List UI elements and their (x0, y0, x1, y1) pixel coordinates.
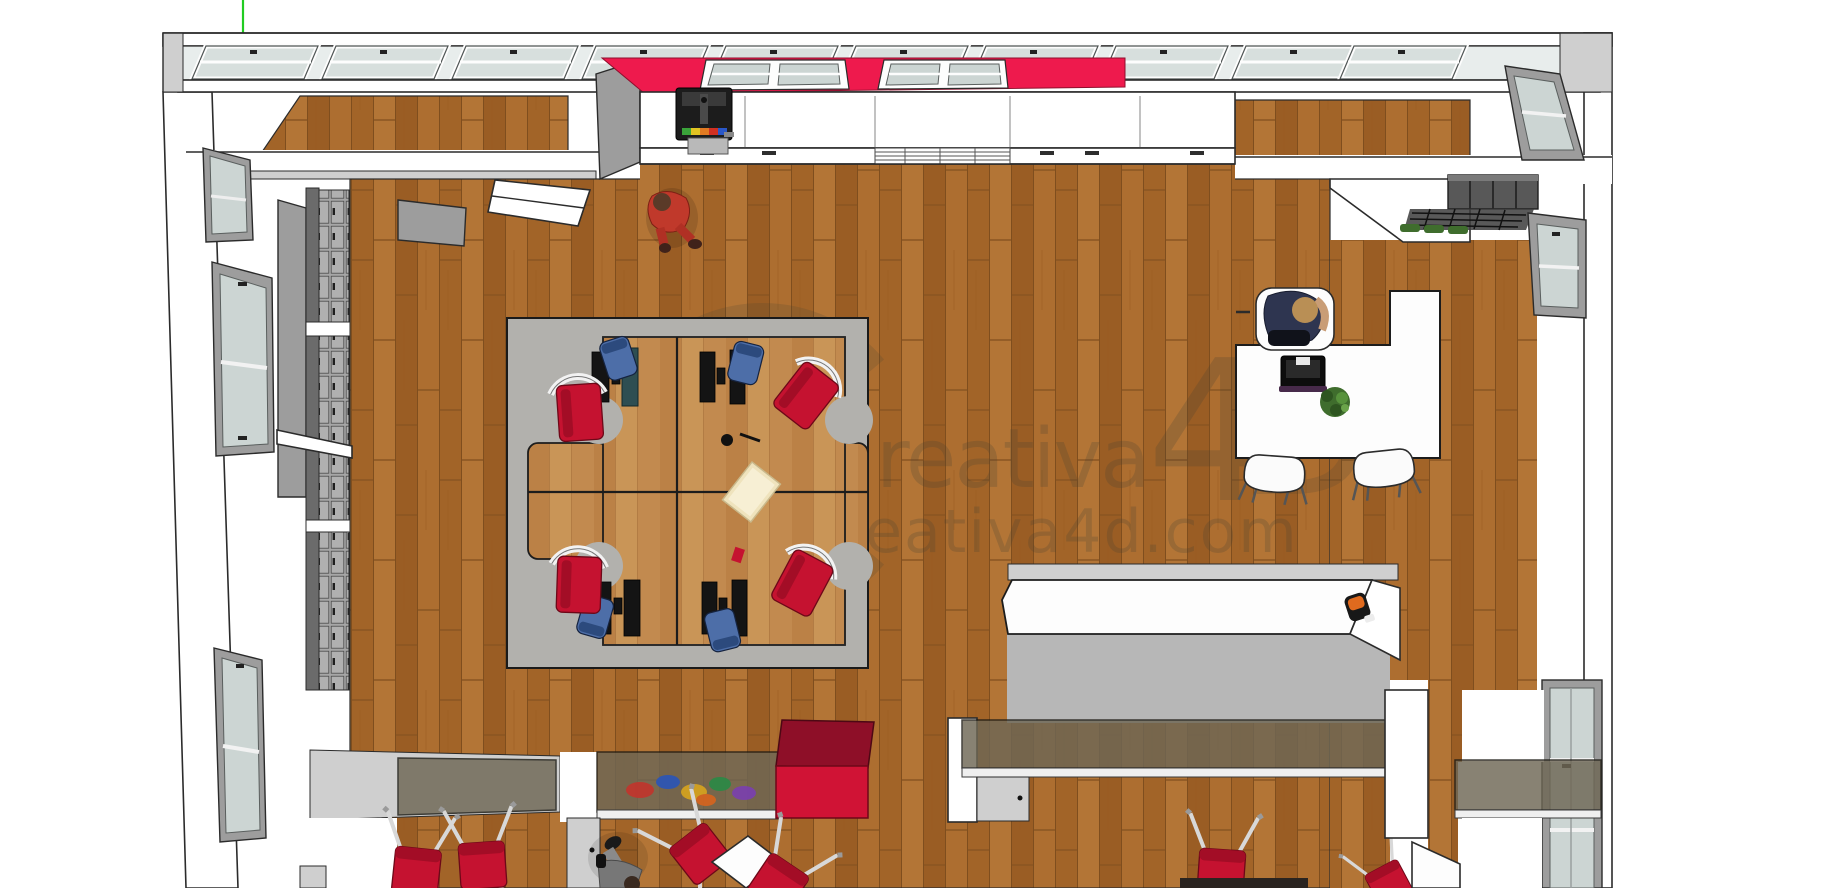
kids-corner-glass (597, 752, 780, 819)
watermark-brand-tail: reativa (876, 412, 1148, 507)
dark-table-edge (1180, 878, 1308, 888)
printer-rainbow-tray (682, 128, 727, 135)
slatted-shelf-section (875, 148, 1010, 164)
window-left-3 (214, 648, 266, 842)
open-door-panel-gray (398, 200, 466, 246)
glass-sill-right (1455, 810, 1601, 818)
office-floorplan-render: reativa 4 D www.creativa4d.com (0, 0, 1827, 888)
gray-storage-panel-left (278, 200, 306, 497)
desk-left-wing (528, 443, 608, 559)
red-cube-ottoman (776, 720, 874, 818)
top-right-corner-post (1560, 33, 1612, 92)
laptop (1279, 356, 1327, 392)
wall-column (1385, 690, 1428, 838)
corridor-floor-top-left (262, 96, 568, 152)
corridor-floor-top-right (1235, 100, 1470, 157)
window-right-mid (1528, 213, 1586, 318)
wall-cap-gray (245, 171, 596, 179)
workstation-cluster (507, 318, 873, 668)
wall-right-patch (1462, 690, 1544, 762)
counter-gray-cap (1008, 564, 1398, 580)
wall-below-glass (1462, 818, 1542, 888)
render-canvas: reativa 4 D www.creativa4d.com (0, 0, 1827, 888)
top-left-corner-post (163, 33, 183, 92)
red-wall-window-group-2 (878, 60, 1008, 89)
glass-sill (962, 768, 1390, 777)
door-gap (560, 752, 597, 822)
glass-partition-right (1455, 760, 1601, 810)
red-wall-window-group-1 (700, 60, 849, 90)
desk-plant (1320, 387, 1350, 417)
reception-counter (1002, 580, 1372, 634)
glass-partition-reception (962, 720, 1390, 768)
red-chair-3 (550, 548, 606, 614)
reception-gray-floor (1007, 633, 1390, 723)
lower-left-gray-bit (300, 866, 326, 888)
glass-over-slab (398, 758, 556, 815)
